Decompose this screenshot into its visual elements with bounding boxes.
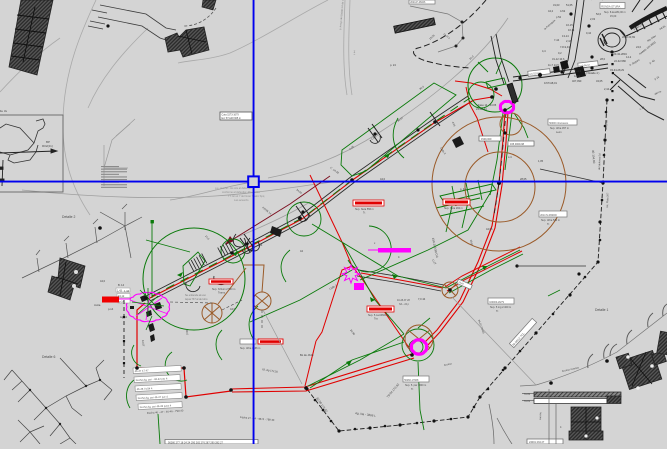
svg-text:p 52: p 52: [556, 15, 562, 19]
svg-text:28,05: 28,05: [520, 177, 527, 181]
svg-text:52,0: 52,0: [596, 12, 602, 16]
svg-text:lle 3s: lle 3s: [0, 109, 8, 113]
svg-text:51,65: 51,65: [566, 3, 573, 7]
svg-text:16-15: 16-15: [566, 23, 573, 27]
svg-text:Sup. Neta 284 m: Sup. Neta 284 m: [444, 207, 463, 210]
svg-text:407,090: 407,090: [572, 79, 582, 83]
svg-text:44,0: 44,0: [100, 279, 106, 283]
svg-text:RONDA OTURA: RONDA OTURA: [601, 4, 620, 8]
svg-text:Se entiende al uso: Se entiende al uso: [185, 294, 206, 297]
svg-text:Tr.: Tr.: [411, 388, 414, 391]
svg-text:Sup. 8.des/84,00 m: Sup. 8.des/84,00 m: [604, 11, 626, 14]
svg-text:2802 23,69: 2802 23,69: [622, 35, 636, 39]
svg-text:Tra: Tra: [374, 318, 378, 321]
svg-text:44,2: 44,2: [548, 9, 554, 13]
svg-text:Sup. Urba 542 m: Sup. Urba 542 m: [541, 219, 560, 222]
svg-text:2,44: 2,44: [566, 39, 572, 43]
svg-text:11-7 14,5: 11-7 14,5: [548, 63, 559, 67]
svg-text:Tr.: Tr.: [450, 211, 453, 214]
svg-text:Detalle 1: Detalle 1: [595, 308, 608, 312]
svg-text:7-44: 7-44: [554, 38, 560, 42]
svg-text:Tramo: Tramo: [218, 292, 226, 295]
svg-text:Aqua 737 al del otro: Aqua 737 al del otro: [185, 298, 208, 301]
svg-text:2,44: 2,44: [604, 87, 610, 91]
svg-text:Leon: Leon: [556, 131, 562, 134]
svg-text:1,43: 1,43: [117, 289, 122, 292]
svg-text:NA - 24 p: NA - 24 p: [399, 303, 410, 306]
svg-text:2014 N-039000: 2014 N-039000: [540, 214, 557, 217]
svg-text:56266-17968: 56266-17968: [404, 379, 419, 382]
svg-text:160000-29/79: 160000-29/79: [489, 301, 504, 304]
svg-text:31,03: 31,03: [553, 3, 560, 7]
svg-text:24 del 44: 24 del 44: [476, 107, 487, 111]
svg-text:13-14: 13-14: [562, 34, 569, 38]
svg-text:Sup. 5. par 1600 m: Sup. 5. par 1600 m: [405, 384, 426, 387]
svg-text:Ed. 571x48 905 m: Ed. 571x48 905 m: [222, 117, 241, 120]
svg-text:7,0 44: 7,0 44: [418, 297, 426, 301]
svg-text:R02(21): R02(21): [42, 144, 53, 148]
svg-text:p34: p34: [602, 0, 607, 1]
svg-text:15,00: 15,00: [610, 15, 617, 18]
svg-text:B. 14: B. 14: [118, 283, 125, 287]
svg-text:34,05: 34,05: [596, 79, 603, 83]
svg-text:( Detalle 4 ): ( Detalle 4 ): [586, 71, 600, 75]
svg-text:2,03: 2,03: [590, 17, 596, 21]
svg-text:camino: camino: [539, 411, 542, 420]
svg-text:1,05: 1,05: [538, 159, 544, 163]
svg-text:44,0: 44,0: [230, 307, 236, 311]
svg-text:Tr.: Tr.: [547, 223, 550, 226]
svg-text:Sup. 5.na.04600 m: Sup. 5.na.04600 m: [368, 314, 389, 317]
svg-text:0,2: 0,2: [558, 51, 562, 55]
svg-text:1549,009: 1549,009: [481, 138, 492, 141]
svg-text:5-4,3: 5-4,3: [575, 69, 581, 73]
svg-text:del defensa 5d: del defensa 5d: [598, 153, 602, 170]
svg-text:0,44: 0,44: [586, 31, 592, 35]
svg-text:4-4,3: 4-4,3: [574, 74, 580, 78]
svg-text:TT. En el 7 del Gran Teatro Sp: TT. En el 7 del Gran Teatro Spq: [228, 194, 265, 198]
svg-text:p. 24: p. 24: [390, 63, 396, 67]
svg-text:Tr.: Tr.: [363, 212, 366, 215]
svg-text:14-2: 14-2: [626, 55, 632, 59]
svg-text:4,4: 4,4: [542, 49, 546, 53]
svg-text:4,07: 4,07: [590, 0, 596, 1]
svg-text:44,05: 44,05: [486, 227, 493, 231]
svg-text:9-57118,01: 9-57118,01: [544, 81, 557, 85]
svg-text:Junta: Junta: [94, 303, 101, 307]
svg-text:4-52: 4-52: [560, 9, 566, 13]
svg-text:p24: p24: [258, 243, 263, 247]
svg-text:Lao acuerdo: Lao acuerdo: [234, 198, 249, 202]
svg-text:44,0: 44,0: [380, 177, 386, 181]
svg-text:Sup. Urba 457 m: Sup. Urba 457 m: [550, 127, 569, 130]
svg-text:p.e. mucho - los sits al defen: p.e. mucho - los sits al defender: [215, 186, 252, 190]
svg-text:22-32-580: 22-32-580: [614, 59, 626, 63]
svg-text:44,12: 44,12: [118, 295, 125, 298]
svg-text:7-8-9,43: 7-8-9,43: [560, 45, 570, 49]
svg-text:48-52 ad: 48-52 ad: [605, 119, 608, 130]
svg-text:165,0009-98: 165,0009-98: [510, 143, 525, 146]
svg-text:p. 44: p. 44: [460, 187, 466, 191]
svg-text:Detalle 6: Detalle 6: [42, 355, 55, 359]
svg-text:c-4: c-4: [508, 155, 512, 159]
svg-text:p-14: p-14: [108, 307, 114, 311]
svg-text:mk. Plata 297: mk. Plata 297: [606, 192, 610, 208]
svg-text:1,44: 1,44: [124, 289, 130, 293]
svg-text:31-12 10,6: 31-12 10,6: [552, 57, 565, 61]
svg-text:28,0: 28,0: [600, 57, 606, 61]
svg-text:46-46 7w34 4: 46-46 7w34 4: [137, 386, 153, 391]
svg-text:Fase 14 - 44 05: Fase 14 - 44 05: [478, 103, 497, 107]
svg-text:Sup. 5 mg 2.400 m: Sup. 5 mg 2.400 m: [490, 306, 511, 309]
svg-text:Tr.: Tr.: [496, 310, 499, 313]
svg-text:16,11: 16,11: [568, 28, 575, 32]
svg-text:103-32-2804: 103-32-2804: [612, 52, 627, 56]
svg-text:Sup. Urba 3666 m: Sup. Urba 3666 m: [240, 347, 260, 350]
svg-text:Detalle 2: Detalle 2: [62, 215, 75, 219]
svg-text:50000 inhumanos: 50000 inhumanos: [549, 122, 569, 125]
svg-text:44,07: 44,07: [141, 340, 146, 347]
svg-text:Bo de JA34: Bo de JA34: [300, 353, 314, 357]
svg-text:46,0: 46,0: [185, 330, 189, 336]
svg-text:40-28 AT 28: 40-28 AT 28: [397, 299, 410, 302]
svg-text:2024-P-26026: 2024-P-26026: [410, 1, 426, 4]
svg-text:24,0: 24,0: [636, 45, 642, 49]
svg-text:03-34-28,29: 03-34-28,29: [610, 68, 625, 72]
